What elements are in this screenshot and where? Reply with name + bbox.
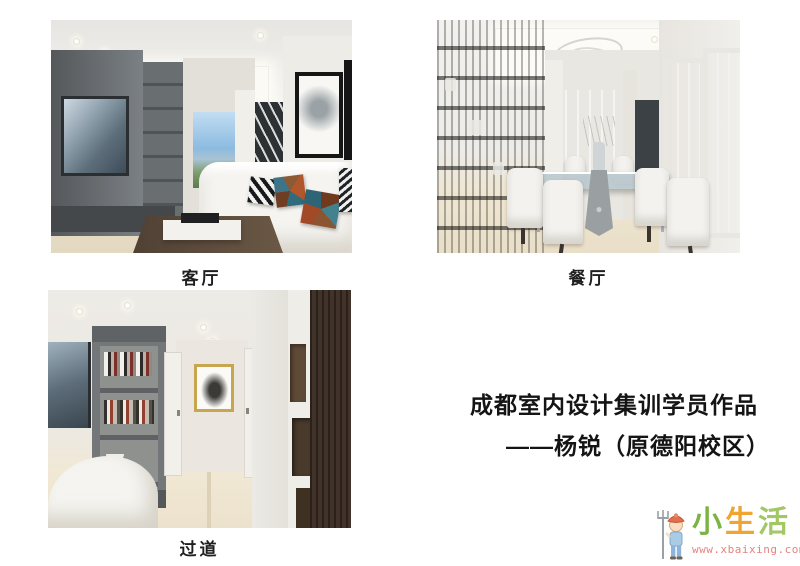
wood-niche (290, 344, 306, 402)
hallway-photo (48, 290, 351, 528)
logo-char: 生 (725, 505, 758, 540)
gold-framed-art (194, 364, 234, 412)
table-tray (181, 213, 219, 223)
coffee-table (163, 220, 241, 240)
site-watermark: 小生活 www.xbaixing.com (656, 506, 798, 564)
wall-art-frame (295, 72, 343, 158)
walnut-wood-panel (310, 290, 351, 528)
spotlight-icon (76, 308, 83, 315)
dining-chair (635, 168, 669, 226)
pillow-bw-pattern (247, 176, 276, 205)
pillow-multicolor (300, 189, 341, 229)
chair-leg (521, 228, 525, 244)
pillow-multicolor (273, 174, 306, 207)
wall-art-frame-edge (344, 60, 352, 160)
farmer-boy-with-pitchfork-icon (656, 509, 690, 563)
dining-room-label: 餐厅 (437, 264, 740, 289)
bookshelf-crown (92, 326, 166, 342)
tv-screen (61, 96, 129, 176)
caption-title: 成都室内设计集训学员作品 (470, 386, 758, 420)
site-url: www.xbaixing.com (692, 543, 800, 556)
logo-char: 活 (758, 505, 791, 540)
caption-author: ——杨锐（原德阳校区） (506, 427, 770, 461)
dining-room-photo (437, 20, 740, 253)
dining-chair (667, 178, 709, 246)
site-logo-text: 小生活 (692, 506, 791, 539)
page: 客厅 餐厅 (0, 0, 800, 566)
spotlight-icon (200, 324, 207, 331)
spotlight-icon (73, 38, 80, 45)
book-row (104, 352, 152, 376)
wall-niche (292, 418, 312, 476)
door-handle (177, 410, 180, 416)
spotlight-icon (257, 32, 264, 39)
hallway-label: 过道 (48, 535, 351, 560)
dining-chair (543, 180, 583, 244)
door-handle (246, 408, 249, 414)
pillow-bw-pattern (339, 168, 352, 212)
shelf-decor-item (469, 120, 482, 135)
shelf-decor-item (445, 78, 456, 91)
living-room-photo (51, 20, 352, 253)
logo-char: 小 (692, 505, 725, 540)
living-room-label: 客厅 (51, 264, 352, 289)
book-row (104, 400, 154, 424)
shelf-decor-item (493, 162, 504, 175)
table-vase (593, 142, 605, 174)
spotlight-icon (124, 302, 131, 309)
chair-leg (647, 226, 651, 242)
spotlight-icon (651, 36, 658, 43)
corridor-floor (160, 472, 258, 528)
tv-screen (48, 342, 91, 428)
dining-chair (507, 168, 543, 228)
